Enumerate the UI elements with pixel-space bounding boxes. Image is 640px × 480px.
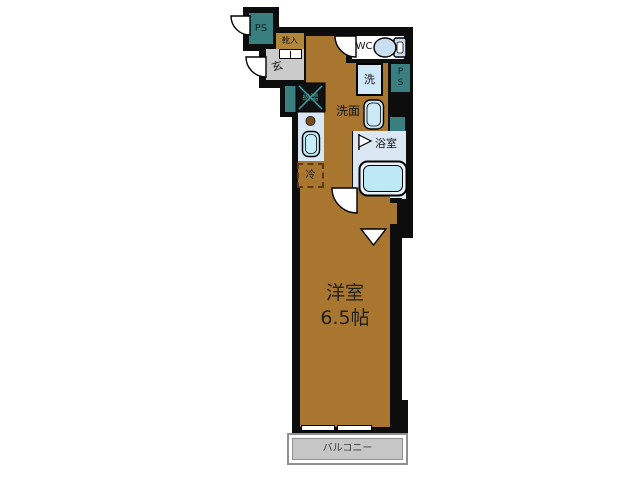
wc-label: WC [353, 39, 375, 55]
main-room-label: 洋室 6.5帖 [300, 281, 390, 330]
kitchen-counter [298, 112, 324, 161]
refrigerator-label: 冷 [306, 171, 316, 181]
refrigerator-space: 冷 [297, 163, 324, 188]
floor-plan: PS 靴入 玄 WC 洗 P S 給湯 冷 浴室 [0, 0, 640, 480]
washer-space-label: 洗 [364, 74, 375, 85]
balcony: バルコニー [287, 433, 408, 465]
pipe-space-right: P S [391, 64, 410, 92]
shoe-cabinet-divider [290, 51, 291, 58]
balcony-inner: バルコニー [292, 438, 403, 460]
water-heater-label: 給湯 [296, 83, 325, 112]
entrance-hall-label-text: 玄 [270, 59, 283, 72]
washer-space: 洗 [356, 63, 383, 96]
wc-label-text: WC [356, 42, 373, 52]
washroom-label: 洗面 [332, 103, 364, 119]
pipe-space-top-left: PS [249, 13, 273, 44]
balcony-label: バルコニー [323, 444, 373, 454]
water-heater-label-text: 給湯 [303, 94, 319, 102]
duct-box-left [285, 86, 296, 112]
pipe-space-top-left-label: PS [255, 24, 267, 34]
main-room-name: 洋室 [300, 281, 390, 306]
pipe-space-right-label-p: P [398, 67, 403, 78]
washroom-label-text: 洗面 [336, 105, 360, 117]
bathroom-label: 浴室 [371, 136, 401, 150]
shoe-box: 靴入 [276, 33, 304, 49]
shoe-box-label: 靴入 [282, 37, 298, 45]
corridor-top-floor [306, 36, 346, 88]
balcony-window-right [337, 425, 372, 431]
duct-box-right [390, 117, 405, 132]
bathroom-label-text: 浴室 [375, 138, 397, 149]
pipe-space-right-label-s: S [398, 78, 404, 89]
balcony-window-left [301, 425, 335, 431]
main-room-size: 6.5帖 [300, 306, 390, 331]
